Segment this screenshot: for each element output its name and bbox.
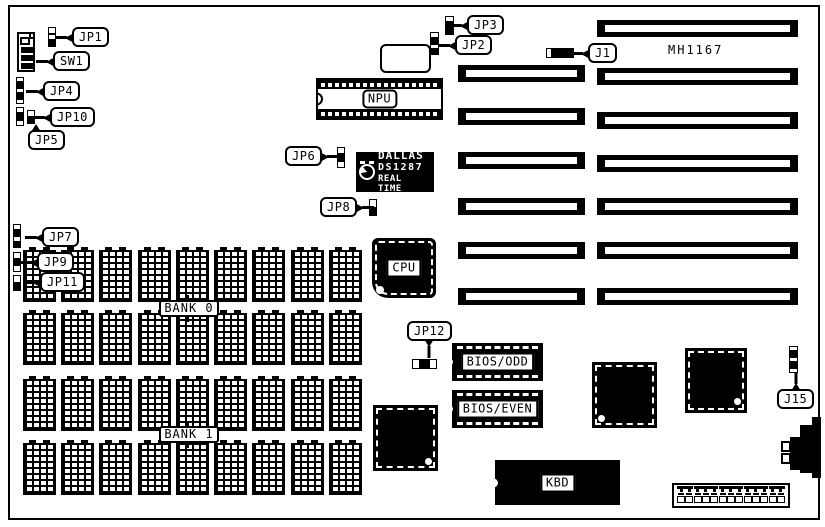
jumper-pin xyxy=(13,275,21,283)
pin-square xyxy=(727,496,735,503)
chip-pin-bump xyxy=(81,310,88,315)
chip-pin-bump xyxy=(311,440,318,445)
pin-dash xyxy=(686,493,692,495)
pin-column xyxy=(710,486,718,505)
expansion-slot xyxy=(597,155,798,172)
pin-stem xyxy=(680,489,683,492)
ram-chip xyxy=(138,379,171,431)
chip-pin-bump xyxy=(234,247,241,252)
chip-pin-bump xyxy=(258,376,265,381)
chip-pin-bump xyxy=(311,376,318,381)
pin-stem xyxy=(696,489,699,492)
jumper-j1 xyxy=(546,48,574,58)
pin-dash xyxy=(720,493,726,495)
pin-stem xyxy=(771,489,774,492)
chip-pin-bump xyxy=(182,376,189,381)
expansion-slot xyxy=(597,68,798,85)
qfp-chip xyxy=(685,348,747,413)
switch-bar xyxy=(21,47,33,53)
ram-chip xyxy=(291,250,324,302)
chip-pin-bump xyxy=(144,376,151,381)
chip-pin-bump xyxy=(119,310,126,315)
leader-line xyxy=(187,317,189,322)
qfp-chip xyxy=(592,362,657,428)
chip-notch xyxy=(452,357,455,368)
npu-label: NPU xyxy=(362,90,397,109)
bios-odd-label: BIOS/ODD xyxy=(461,353,535,372)
chip-pin-bump xyxy=(29,310,36,315)
callout-jp3: JP3 xyxy=(467,15,504,35)
pin-dash xyxy=(745,493,751,495)
socket-pin xyxy=(335,112,339,116)
pin-dash xyxy=(678,493,684,495)
pin-column xyxy=(685,486,693,505)
rtc-chip: DALLAS DS1287 REAL TIME xyxy=(356,152,434,192)
bios-even-chip: BIOS/EVEN xyxy=(452,390,543,428)
chip-pin-bump xyxy=(311,247,318,252)
rtc-brand: DALLAS xyxy=(378,150,431,163)
slot-opening xyxy=(466,247,577,254)
power-pin-header xyxy=(672,483,790,508)
expansion-slot xyxy=(597,288,798,305)
ram-chip xyxy=(329,443,362,495)
chip-pin-bump xyxy=(297,440,304,445)
expansion-slot xyxy=(458,65,585,82)
socket-pin xyxy=(419,112,423,116)
ram-chip xyxy=(99,379,132,431)
slot-opening xyxy=(466,113,577,120)
ram-chip xyxy=(214,313,247,365)
rtc-chip-text: DALLAS DS1287 REAL TIME xyxy=(378,150,431,195)
slot-opening xyxy=(466,157,577,164)
pin-dashes xyxy=(457,393,538,396)
slot-opening xyxy=(466,70,577,77)
socket-pin xyxy=(356,112,360,116)
clock-icon xyxy=(359,164,375,180)
socket-pin xyxy=(342,83,346,87)
pin-dash xyxy=(711,493,717,495)
chip-pin-bump xyxy=(234,310,241,315)
rtc-part-number: DS1287 xyxy=(378,162,431,174)
switch-bar xyxy=(21,55,33,61)
chip-pin-bump xyxy=(234,440,241,445)
ram-chip xyxy=(99,443,132,495)
pin-stem xyxy=(704,489,707,492)
pin-column xyxy=(727,486,735,505)
socket-pin xyxy=(349,112,353,116)
socket-pin xyxy=(363,83,367,87)
ram-chip xyxy=(329,250,362,302)
slot-opening xyxy=(605,117,790,124)
chip-pin-bump xyxy=(297,247,304,252)
chip-pin-bump xyxy=(272,247,279,252)
chip-pin-bump xyxy=(29,247,36,252)
chip-pin-bump xyxy=(67,440,74,445)
board-model: MH1167 xyxy=(668,43,723,57)
chip-pin-bump xyxy=(105,376,112,381)
callout-jp9: JP9 xyxy=(37,252,74,272)
jumper-pin xyxy=(13,252,21,259)
pin1-dot xyxy=(598,415,605,422)
socket-pin xyxy=(363,112,367,116)
socket-pin xyxy=(370,112,374,116)
socket-pin xyxy=(321,83,325,87)
jumper-pin xyxy=(445,29,454,35)
jumper-pin xyxy=(13,265,21,272)
pin-dashes xyxy=(457,422,538,425)
jumper-jp11 xyxy=(13,275,21,291)
chip-notch xyxy=(316,93,323,106)
jumper-pin xyxy=(16,99,24,104)
chip-pin-bump xyxy=(43,376,50,381)
chip-pin-bump xyxy=(258,440,265,445)
chip-notch xyxy=(495,476,500,489)
socket-pin xyxy=(426,83,430,87)
ram-chip xyxy=(214,379,247,431)
pin-stem xyxy=(754,489,757,492)
chip-pin-bump xyxy=(144,310,151,315)
pin-square xyxy=(760,496,768,503)
socket-pin xyxy=(433,83,437,87)
chip-pin-bump xyxy=(220,310,227,315)
ram-chip xyxy=(99,313,132,365)
pin-stem xyxy=(746,489,749,492)
socket-pin xyxy=(426,112,430,116)
dip-switch-sw1 xyxy=(17,32,35,72)
jumper-pin xyxy=(13,242,21,248)
slot-opening xyxy=(605,247,790,254)
chip-pin-bump xyxy=(81,247,88,252)
ram-chip xyxy=(23,379,56,431)
ram-chip xyxy=(138,250,171,302)
ram-chip xyxy=(176,443,209,495)
socket-pin xyxy=(405,112,409,116)
connector-tab xyxy=(781,453,791,464)
keyboard-connector xyxy=(790,437,801,470)
pin-square xyxy=(735,496,743,503)
chip-pin-bump xyxy=(105,310,112,315)
pin-dash xyxy=(753,493,759,495)
expansion-slot xyxy=(458,198,585,215)
chip-pin-bump xyxy=(349,440,356,445)
chip-pin-bump xyxy=(297,376,304,381)
callout-jp4: JP4 xyxy=(43,81,80,101)
expansion-slot xyxy=(597,20,798,37)
pin-stem xyxy=(688,489,691,492)
socket-pin xyxy=(328,83,332,87)
socket-pin xyxy=(419,83,423,87)
pin-dash xyxy=(728,493,734,495)
pin-dash xyxy=(703,493,709,495)
pin-dash xyxy=(695,493,701,495)
pin-square xyxy=(702,496,710,503)
kbd-chip: KBD xyxy=(495,460,620,505)
ram-chip xyxy=(252,313,285,365)
ram-chip xyxy=(176,250,209,302)
socket-pin xyxy=(356,83,360,87)
chip-pin-bump xyxy=(220,440,227,445)
callout-jp10: JP10 xyxy=(50,107,95,127)
rtc-subtitle: REAL TIME xyxy=(378,174,431,195)
callout-jp7: JP7 xyxy=(42,227,79,247)
callout-j15: J15 xyxy=(777,389,814,409)
pin-square xyxy=(777,496,785,503)
cpu-label: CPU xyxy=(386,259,421,278)
jumper-pin xyxy=(337,161,345,168)
ram-chip xyxy=(291,379,324,431)
pin-square xyxy=(769,496,777,503)
chip-pin-bump xyxy=(43,440,50,445)
pin-dash xyxy=(736,493,742,495)
callout-jp11: JP11 xyxy=(40,272,85,292)
pin-stem xyxy=(763,489,766,492)
pin-column xyxy=(702,486,710,505)
pin-stem xyxy=(738,489,741,492)
pin-stem xyxy=(779,489,782,492)
socket-pin xyxy=(391,83,395,87)
chip-notch xyxy=(452,404,455,415)
pin-column xyxy=(769,486,777,505)
pin-column xyxy=(760,486,768,505)
slot-opening xyxy=(605,73,790,80)
callout-jp1: JP1 xyxy=(72,27,109,47)
socket-pin xyxy=(328,112,332,116)
pin-column xyxy=(677,486,685,505)
chip-pin-bump xyxy=(144,247,151,252)
ram-chip xyxy=(138,443,171,495)
chip-pin-bump xyxy=(220,247,227,252)
callout-jp12: JP12 xyxy=(407,321,452,341)
chip-pin-bump xyxy=(182,247,189,252)
socket-pin xyxy=(342,112,346,116)
ram-chip xyxy=(61,313,94,365)
jumper-pin xyxy=(48,27,56,34)
socket-pin xyxy=(370,83,374,87)
socket-pin xyxy=(321,112,325,116)
chip-pin-bump xyxy=(119,376,126,381)
jumper-pin xyxy=(412,359,420,369)
chip-pin-bump xyxy=(335,310,342,315)
bios-even-label: BIOS/EVEN xyxy=(457,400,539,419)
pin1-dot xyxy=(734,398,741,405)
pin-column xyxy=(752,486,760,505)
expansion-slot xyxy=(458,288,585,305)
bank0-label: BANK 0 xyxy=(159,300,219,317)
expansion-slot xyxy=(458,242,585,259)
socket-pin xyxy=(412,83,416,87)
chip-pin-bump xyxy=(258,247,265,252)
pin-square xyxy=(752,496,760,503)
chip-pin-bump xyxy=(349,376,356,381)
slot-opening xyxy=(605,293,790,300)
chip-pin-bump xyxy=(158,376,165,381)
crystal-oscillator xyxy=(380,44,431,73)
pin1-dot xyxy=(425,458,432,465)
jumper-pin xyxy=(16,120,24,126)
slot-opening xyxy=(466,293,577,300)
socket-pin xyxy=(384,112,388,116)
slot-opening xyxy=(605,203,790,210)
chip-pin-bump xyxy=(258,310,265,315)
chip-pin-bump xyxy=(29,376,36,381)
slot-opening xyxy=(605,25,790,32)
callout-jp8: JP8 xyxy=(320,197,357,217)
chip-pin-bump xyxy=(311,310,318,315)
chip-pin-bump xyxy=(196,376,203,381)
callout-sw1: SW1 xyxy=(53,51,90,71)
ram-chip xyxy=(176,313,209,365)
jumper-pin xyxy=(420,359,428,369)
chip-pin-bump xyxy=(272,440,279,445)
chip-pin-bump xyxy=(272,310,279,315)
chip-pin-bump xyxy=(29,440,36,445)
callout-jp5: JP5 xyxy=(28,130,65,150)
pin-square xyxy=(694,496,702,503)
ram-chip xyxy=(61,379,94,431)
pin-square xyxy=(677,496,685,503)
ram-chip xyxy=(23,313,56,365)
pin-dash xyxy=(761,493,767,495)
slot-opening xyxy=(605,160,790,167)
pin-column xyxy=(719,486,727,505)
socket-pin xyxy=(398,83,402,87)
pin-dashes xyxy=(457,346,538,349)
ram-chip xyxy=(214,250,247,302)
cpu-chip: CPU xyxy=(372,238,436,298)
chip-pin-bump xyxy=(297,310,304,315)
pin-stem xyxy=(721,489,724,492)
pin-stem xyxy=(729,489,732,492)
jumper-jp12 xyxy=(412,359,437,369)
motherboard-diagram: NPU DALLAS DS1287 REAL TIME CPU BIOS/ODD… xyxy=(0,0,825,527)
bank1-label: BANK 1 xyxy=(159,426,219,443)
chip-pin-bump xyxy=(119,440,126,445)
pin-square xyxy=(719,496,727,503)
chip-pin-bump xyxy=(220,376,227,381)
chip-pin-bump xyxy=(234,376,241,381)
slot-opening xyxy=(466,203,577,210)
socket-pin xyxy=(398,112,402,116)
pin-stem xyxy=(713,489,716,492)
npu-socket: NPU xyxy=(316,78,443,120)
ram-chip xyxy=(138,313,171,365)
connector-tab xyxy=(781,441,791,452)
expansion-slot xyxy=(597,112,798,129)
socket-pin xyxy=(377,112,381,116)
chip-pin-bump xyxy=(67,376,74,381)
ram-chip xyxy=(61,443,94,495)
jumper-j15 xyxy=(789,346,798,373)
pin-dashes xyxy=(457,375,538,378)
expansion-slot xyxy=(597,242,798,259)
ram-chip xyxy=(214,443,247,495)
chip-pin-bump xyxy=(81,440,88,445)
ram-chip xyxy=(291,443,324,495)
ram-chip xyxy=(23,443,56,495)
chip-pin-bump xyxy=(67,310,74,315)
chip-pin-bump xyxy=(105,440,112,445)
chip-pin-bump xyxy=(196,247,203,252)
jumper-jp10a xyxy=(16,107,24,126)
pin1-dot xyxy=(376,286,384,294)
jumper-pin xyxy=(48,40,56,47)
jumper-pin xyxy=(337,147,345,154)
keyboard-connector xyxy=(812,417,821,478)
ram-chip xyxy=(176,379,209,431)
ram-chip xyxy=(329,313,362,365)
jumper-pin xyxy=(430,49,439,55)
chip-pin-bump xyxy=(272,376,279,381)
leader-line xyxy=(187,443,189,448)
socket-pin xyxy=(412,112,416,116)
chip-pin-bump xyxy=(105,247,112,252)
socket-pin xyxy=(405,83,409,87)
jumper-pin xyxy=(429,359,437,369)
ram-chip xyxy=(252,250,285,302)
chip-pin-bump xyxy=(335,247,342,252)
ram-chip xyxy=(99,250,132,302)
pin-column xyxy=(744,486,752,505)
socket-pin xyxy=(377,83,381,87)
socket-pin xyxy=(335,83,339,87)
pin-square xyxy=(685,496,693,503)
chip-pin-bump xyxy=(144,440,151,445)
pin-column xyxy=(777,486,785,505)
pin-square xyxy=(744,496,752,503)
socket-pin xyxy=(384,83,388,87)
expansion-slot xyxy=(458,152,585,169)
callout-jp6: JP6 xyxy=(285,146,322,166)
socket-pin xyxy=(433,112,437,116)
keyboard-connector xyxy=(800,425,813,473)
chip-pin-bump xyxy=(43,310,50,315)
qfp-chip xyxy=(373,405,438,471)
socket-pin xyxy=(391,112,395,116)
chip-pin-bump xyxy=(335,440,342,445)
chip-pin-bump xyxy=(158,247,165,252)
ram-chip xyxy=(291,313,324,365)
switch-notch xyxy=(29,32,35,39)
socket-pin-row xyxy=(318,109,441,118)
chip-pin-bump xyxy=(81,376,88,381)
chip-pin-bump xyxy=(349,310,356,315)
jumper-pin xyxy=(13,283,21,291)
ram-chip xyxy=(329,379,362,431)
pin-dash xyxy=(778,493,784,495)
socket-pin xyxy=(349,83,353,87)
ram-chip xyxy=(252,379,285,431)
bios-odd-chip: BIOS/ODD xyxy=(452,343,543,381)
callout-jp2: JP2 xyxy=(455,35,492,55)
chip-pin-bump xyxy=(119,247,126,252)
pin-column xyxy=(735,486,743,505)
pin-dash xyxy=(770,493,776,495)
expansion-slot xyxy=(458,108,585,125)
socket-pin-row xyxy=(318,80,441,89)
callout-j1: J1 xyxy=(588,43,617,63)
kbd-label: KBD xyxy=(540,473,575,492)
switch-bar xyxy=(21,63,33,69)
pin-square xyxy=(710,496,718,503)
pin-column xyxy=(694,486,702,505)
chip-pin-bump xyxy=(349,247,356,252)
chip-pin-bump xyxy=(335,376,342,381)
jumper-jp7 xyxy=(13,224,21,248)
expansion-slot xyxy=(597,198,798,215)
ram-chip xyxy=(252,443,285,495)
jumper-jp4 xyxy=(16,77,24,104)
